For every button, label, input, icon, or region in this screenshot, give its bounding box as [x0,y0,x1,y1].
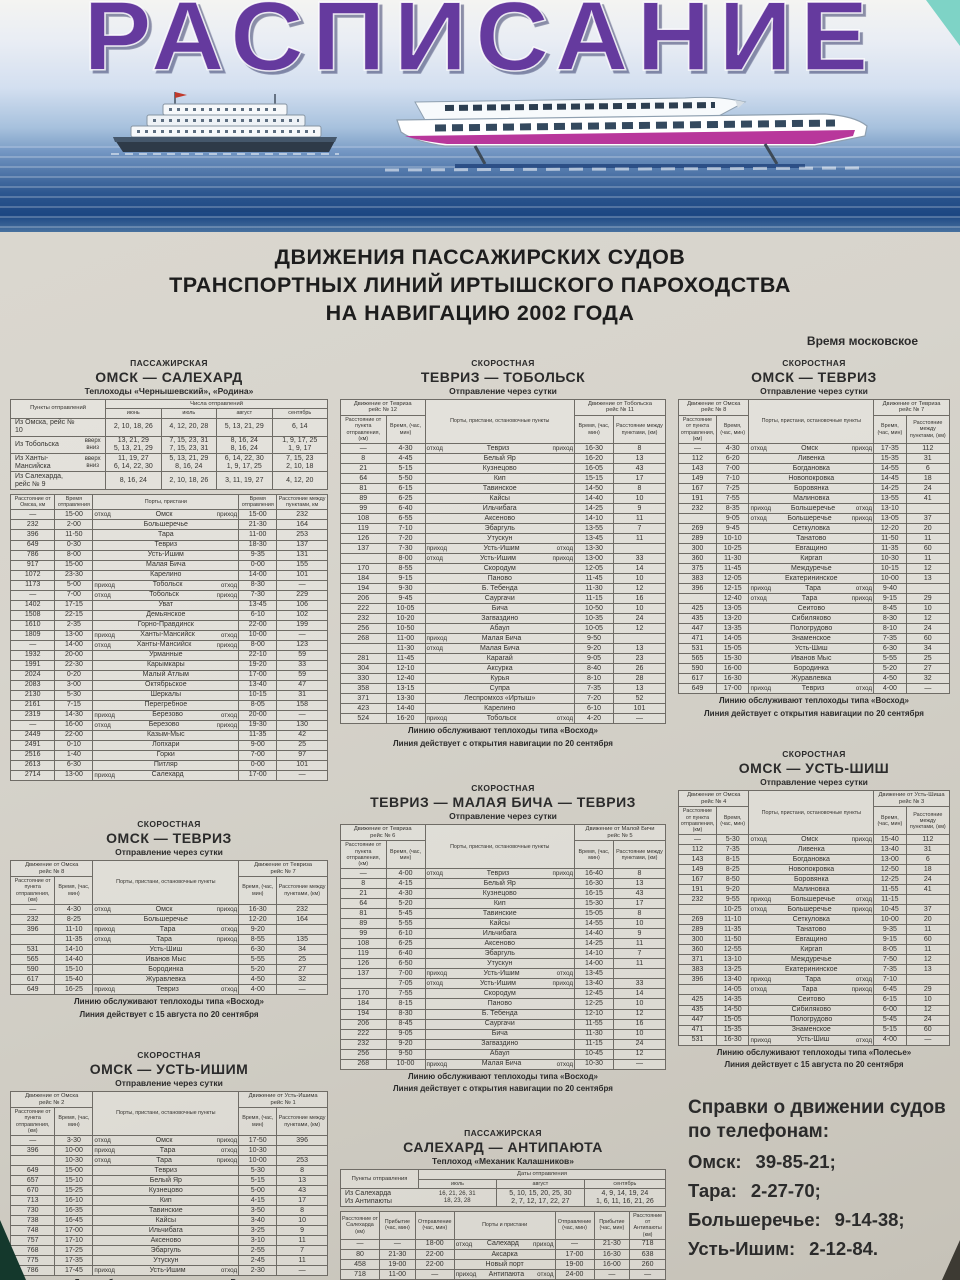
station-cell: Екатерининское [749,574,874,584]
station-name: Тара [771,976,855,984]
cell [906,895,949,905]
cell: 396 [11,925,55,935]
station-name: Малая Бича [444,645,557,653]
cell: 7, 15, 23 2, 10, 18 [272,454,328,472]
cell: 11 [614,959,666,969]
cell: 4, 12, 20 [272,472,328,490]
cell: 4-45 [386,453,425,463]
cell: 10-50 [575,604,614,614]
station-cell: Тавинские [93,1206,239,1216]
station-name: Абаул [444,625,557,633]
station-cell: приходМалая Бичаотход [425,1059,575,1069]
cell: 12 [906,614,949,624]
movement-label: отход [427,555,444,562]
cell: 730 [11,1206,55,1216]
col-header: Время, (час, мин) [716,807,749,835]
cell: 6-20 [716,453,749,463]
cell [11,1156,55,1166]
cell: 2319 [11,710,55,720]
cell: 435 [679,1005,717,1015]
station-name: Иванов Мыс [111,956,220,964]
station-name: Б. Тебенда [444,1010,557,1018]
station-cell: Кайсы [425,494,575,504]
station-name: Тавинские [444,910,557,918]
station-cell: Киргап [749,945,874,955]
station-name: Кузнецово [444,465,557,473]
cell: 9-05 [716,514,749,524]
cell: 41 [906,885,949,895]
cell: — [679,835,717,845]
cell: 11-45 [386,654,425,664]
cell: 14-45 [874,473,907,483]
table-row: —16-00отходБерезовоприход19-30130 [11,720,328,730]
cell: 11-55 [874,885,907,895]
cell: 149 [679,865,717,875]
cell: 371 [679,955,717,965]
cell: 7-55 [386,989,425,999]
table-row: 23210-20Загваздино10-3524 [341,614,666,624]
cell: 13 [614,879,666,889]
cell: 590 [11,965,55,975]
cell: 158 [277,700,328,710]
cell: 29 [906,985,949,995]
station-name: Шеркалы [111,691,220,699]
banner: РАСПИСАНИЕ [0,0,960,232]
cell: 16-35 [55,1206,93,1216]
table-omsk-ust-shish: СКОРОСТНАЯ ОМСК — УСТЬ-ШИШ Отправление ч… [678,749,950,1070]
col-header-month: сентябрь [584,1180,665,1189]
cell: 0-30 [55,540,93,550]
cell: 13-40 [239,680,277,690]
cell: 8-30 [386,1009,425,1019]
station-cell: Бородинка [749,664,874,674]
station-cell: приходТараотход [749,975,874,985]
cell: 41 [906,494,949,504]
station-cell: Октябрьское [93,680,239,690]
table-row: 47115-35Знаменское5-1560 [679,1025,950,1035]
movement-label: приход [750,585,771,592]
station-name: Журавлевка [111,976,220,984]
cruise-ship-illustration [105,90,345,170]
cell: 371 [341,694,387,704]
station-cell: Скородум [425,989,575,999]
cell: 13 [614,684,666,694]
col-header: Расстояние от пункта отправления, (км) [341,841,387,869]
cell: 19-20 [239,660,277,670]
cell: 2613 [11,760,55,770]
cell: 9-40 [874,584,907,594]
table-row: 71316-10Кип4-1517 [11,1196,328,1206]
cell: 17-50 [239,1136,277,1146]
cell: 6-45 [874,985,907,995]
cell: 2, 10, 18, 26 [106,418,161,436]
stations-table: Движение от Тевриза рейс № 6 Порты, прис… [340,824,666,1069]
station-cell: Саургачи [425,1019,575,1029]
cell: 13-10 [874,504,907,514]
col-header: Отправление (час, мин) [555,1212,594,1240]
cell: 112 [679,453,717,463]
cell: 7, 15, 23, 31 7, 15, 23, 31 [161,436,216,454]
cell: 1173 [11,580,55,590]
col-header: Прибытие (час, мин) [380,1212,416,1240]
cell: 14-05 [716,985,749,995]
station-name: Кип [444,900,557,908]
table-row: 1267-20Утускун13-4511 [341,534,666,544]
movement-label: отход [94,642,111,649]
cell: 7-10 [386,524,425,534]
phone-info-heading: Справки о движении судов по телефонам: [688,1096,946,1144]
cell: 8 [614,443,666,453]
station-name: Бича [444,605,557,613]
cell: 16-10 [55,1196,93,1206]
table-row: 1677-25Боровянка14-2524 [679,484,950,494]
station-cell: приходУсть-Ишимотход [425,544,575,554]
station-cell: Сеткуловка [749,915,874,925]
station-name: Пологрудово [767,1016,855,1024]
cell: 10-35 [575,614,614,624]
cell: 617 [11,975,55,985]
cell: 6-25 [386,939,425,949]
station-cell: Утускун [425,959,575,969]
station-name: Березово [111,721,216,729]
cell: 447 [679,1015,717,1025]
cell: — [906,684,949,694]
cell: 11-10 [55,925,93,935]
movement-label: отход [750,906,767,913]
station-cell: Шеркалы [93,690,239,700]
cell: 638 [630,1249,666,1259]
table-title: ОМСК — ТЕВРИЗ [10,830,328,846]
cell: 14-25 [575,504,614,514]
cell: 12-50 [874,865,907,875]
cell: 304 [341,664,387,674]
col-header: Порты, пристани, остановочные пункты [749,791,874,835]
station-name: Ильчибага [444,930,557,938]
station-cell: отходТараприход [93,1156,239,1166]
phone-number: 2-12-84. [809,1238,878,1259]
cell: 199 [277,620,328,630]
movement-label: отход [750,986,767,993]
cell: 149 [679,473,717,483]
station-cell: Большеречье [93,520,239,530]
column-right: СКОРОСТНАЯ ОМСК — ТЕВРИЗ Отправление чер… [678,352,950,1280]
table-row: 26810-00приходМалая Бичаотход10-30— [341,1059,666,1069]
station-name: Тара [767,986,851,994]
cell: 10-30 [874,554,907,564]
cell: 22-30 [55,660,93,670]
table-row: 28910-10Танатово11-5011 [679,534,950,544]
table-row: 1917-55Малиновка13-5541 [679,494,950,504]
table-row: 2069-45Саургачи11-1516 [341,594,666,604]
station-cell: отходОмскприход [749,835,874,845]
table-row: 193220-00Урманные22-1059 [11,650,328,660]
table-omsk-ust-ishim: СКОРОСТНАЯ ОМСК — УСТЬ-ИШИМ Отправление … [10,1050,328,1280]
cell: 917 [11,560,55,570]
cell: 20-00 [55,650,93,660]
station-name: Аксурка [444,665,557,673]
cell: 97 [277,750,328,760]
cell: 14-00 [575,959,614,969]
table-row: 12-40отходТараприход9-1529 [679,594,950,604]
cell: 13-45 [239,600,277,610]
cell: 13-10 [716,955,749,965]
col-header: Движение от Омска рейс № 2 [11,1091,93,1107]
cell: 17-45 [55,1266,93,1276]
movement-label: отход [220,582,237,589]
cell: 7-55 [716,494,749,504]
col-header-month: август [497,1180,585,1189]
cell: 17-25 [55,1246,93,1256]
movement-label: приход [94,712,115,719]
cell: 22-00 [415,1249,454,1259]
table-subtitle: Отправление через сутки [340,386,666,396]
table-subtitle: Теплоходы «Чернышевский», «Родина» [10,386,328,396]
station-name: Скородум [444,565,557,573]
table-row: 215-15Кузнецово16-0543 [341,463,666,473]
cell: 16-30 [716,674,749,684]
cell: 108 [341,514,387,524]
table-row: 64915-00Тевриз5-308 [11,1166,328,1176]
cell: 60 [906,935,949,945]
cell: 5-15 [874,1025,907,1035]
table-row: 1708-55Скородум12-0514 [341,564,666,574]
col-header: Расстояние от Салехарда (км) [341,1212,380,1240]
cell: 12-40 [386,674,425,684]
cell [906,504,949,514]
cell: 15-00 [239,510,277,520]
station-name: Тевриз [771,685,855,693]
stations-table: Движение от Омска рейс № 8 Порты, приста… [10,860,328,995]
station-name: Кайсы [111,1217,220,1225]
cell: 12-20 [239,915,277,925]
cell: 13-35 [716,624,749,634]
cell: 13 [277,1176,328,1186]
station-name: Эбаргуль [444,525,557,533]
station-name: Абаул [444,1050,557,1058]
cell: 2130 [11,690,55,700]
cell: 60 [906,544,949,554]
cell: 7-10 [874,975,907,985]
table-omsk-tevriz-express: СКОРОСТНАЯ ОМСК — ТЕВРИЗ Отправление чер… [10,819,328,1020]
movement-label: отход [855,685,872,692]
cell: 396 [11,530,55,540]
table-row: 75717-10Аксеново3-1011 [11,1236,328,1246]
cell: 5-30 [239,1166,277,1176]
station-name: Аксеново [111,1237,220,1245]
station-name: Тара [111,531,220,539]
cell: 256 [341,624,387,634]
table-row: —4-30отходОмскприход17-35112 [679,443,950,453]
station-name: Сибиляково [767,615,855,623]
col-header: Время, (час, мин) [716,416,749,444]
cell: 2516 [11,750,55,760]
cell: 10-00 [386,1059,425,1069]
station-name: Тевриз [444,870,553,878]
cell: 9-20 [386,1039,425,1049]
cell: 13-55 [874,494,907,504]
cell: 11 [906,925,949,935]
cell: 10 [277,1216,328,1226]
station-name: Омск [111,511,216,519]
cell: 7-30 [386,544,425,554]
cell: — [555,1239,594,1249]
cell [906,975,949,985]
schedule-poster: РАСПИСАНИЕ [0,0,960,1280]
cell: 16-00 [594,1259,630,1269]
table-row: 39612-15приходТараотход9-40 [679,584,950,594]
cell: 17 [614,473,666,483]
col-header: Движение от Тевриза рейс № 7 [874,399,950,415]
movement-label: отход [556,1061,573,1068]
station-name: Тевриз [111,1167,220,1175]
station-name: Ливенка [767,455,855,463]
station-name: Большеречье [767,515,851,523]
cell: 11-15 [575,594,614,604]
col-header: Порты и пристани [454,1212,555,1240]
cell: 6, 14 [272,418,328,436]
cell: 14-25 [874,484,907,494]
station-cell: Большеречье [93,915,239,925]
station-name: Танатово [767,926,855,934]
cell: 232 [277,510,328,520]
station-name: Ханты-Мансийск [115,631,220,639]
station-name: Б. Тебенда [444,585,557,593]
cell: 12-40 [716,594,749,604]
table-row: 20240-20Малый Атлым17-0059 [11,670,328,680]
cell: 8 [341,453,387,463]
cell: 7-00 [716,463,749,473]
movement-label: приход [94,582,115,589]
table-row: 36011-30Киргап10-3011 [679,554,950,564]
table-title: ОМСК — САЛЕХАРД [10,369,328,385]
station-cell: приходУсть-Шишотход [749,1035,874,1045]
cell: 11 [614,534,666,544]
cell: 25 [277,955,328,965]
cell: 5-30 [716,835,749,845]
station-name: Бородинка [111,966,220,974]
station-name: Междуречье [767,956,855,964]
cell: 8-50 [716,875,749,885]
col-header: Движение от Омска рейс № 8 [679,399,749,415]
cell: 37 [906,905,949,915]
station-name: Ливенка [767,846,855,854]
table-row: 271413-00приходСалехард17-00— [11,770,328,780]
cell: 15-05 [575,909,614,919]
cell: 757 [11,1236,55,1246]
col-header: Время, (час, мин) [55,1108,93,1136]
table-row: 2229-05Бича11-3010 [341,1029,666,1039]
station-cell: отходБерезовоприход [93,720,239,730]
cell: 6-25 [386,494,425,504]
cell: 24 [614,614,666,624]
table-row: 14-05отходТараприход6-4529 [679,985,950,995]
table-row: 7-05отходУсть-Ишимприход13-4033 [341,979,666,989]
cell: 649 [11,540,55,550]
cell: 9-35 [239,550,277,560]
station-cell: Кайсы [425,919,575,929]
table-row: 7868-00Усть-Ишим9-35131 [11,550,328,560]
stations-table: Движение от Омска рейс № 8 Порты, приста… [678,399,950,695]
station-name: Большеречье [111,521,220,529]
table-row: 56515-30Иванов Мыс5-5525 [679,654,950,664]
station-cell: Ливенка [749,845,874,855]
cell: 3-10 [239,1236,277,1246]
station-name: Антипаюта [476,1271,536,1279]
station-name: Горки [111,751,220,759]
table-row: 1086-25Аксеново14-2511 [341,939,666,949]
movement-label: приход [456,1271,477,1278]
cell: 256 [341,1049,387,1059]
cell: 6-00 [874,1005,907,1015]
cell: 13-25 [716,965,749,975]
station-cell: Кузнецово [425,889,575,899]
cell: 2-35 [55,620,93,630]
col-header: Движение от Малой Бичи рейс № 5 [575,825,666,841]
cell: 21-30 [594,1239,630,1249]
station-cell: Боровянка [749,484,874,494]
movement-label: приход [217,642,238,649]
cell: 16-25 [55,985,93,995]
col-header: Движение от Тевриза рейс № 12 [341,399,426,415]
station-cell: отходТараприход [749,594,874,604]
cell: 9-55 [716,895,749,905]
cell: 5-15 [386,463,425,473]
movement-label: приход [750,505,771,512]
cell: 101 [277,570,328,580]
cell: 16-40 [575,869,614,879]
col-header: Расстояние между пунктами, (км) [614,841,666,869]
cell: 300 [679,935,717,945]
station-cell: отходБольшеречьеприход [749,514,874,524]
cell: 17-00 [55,1226,93,1236]
cell: 137 [341,969,387,979]
col-header: Время, (час, мин) [239,877,277,905]
cell: 423 [341,704,387,714]
station-name: Тевриз [111,541,220,549]
station-name: Тара [767,595,851,603]
cell: 6-10 [239,610,277,620]
table-row: 71811-00—приходАнтипаютаотход24-00—— [341,1269,666,1279]
cell: 9-05 [575,654,614,664]
cell: 10 [614,1029,666,1039]
cell: 6-15 [386,484,425,494]
cell [80,472,105,490]
col-header: Порты, пристани [93,495,239,510]
col-header: Расстояние между пунктами, (км) [277,877,328,905]
station-cell: Малый Атлым [93,670,239,680]
table-row: 61715-40Журавлевка4-5032 [11,975,328,985]
cell: 59 [277,650,328,660]
col-header: Пункты отправлений [11,399,106,418]
station-name: Богдановка [767,856,855,864]
station-name: Омск [767,445,851,453]
station-cell: Кузнецово [93,1186,239,1196]
phone-info-block: Справки о движении судов по телефонам: О… [688,1096,946,1280]
cell: 12-15 [716,584,749,594]
table-row: 91715-00Малая Бича0-00155 [11,560,328,570]
cell: 130 [277,720,328,730]
cell [341,554,387,564]
movement-label: отход [855,505,872,512]
station-name: Киргап [767,555,855,563]
cell: 8-05 [239,700,277,710]
movement-label: приход [94,772,115,779]
cell: 28 [614,674,666,684]
cell: 15-35 [716,1025,749,1035]
station-name: Тара [111,936,216,944]
movement-label: отход [750,515,767,522]
cell: 106 [277,600,328,610]
